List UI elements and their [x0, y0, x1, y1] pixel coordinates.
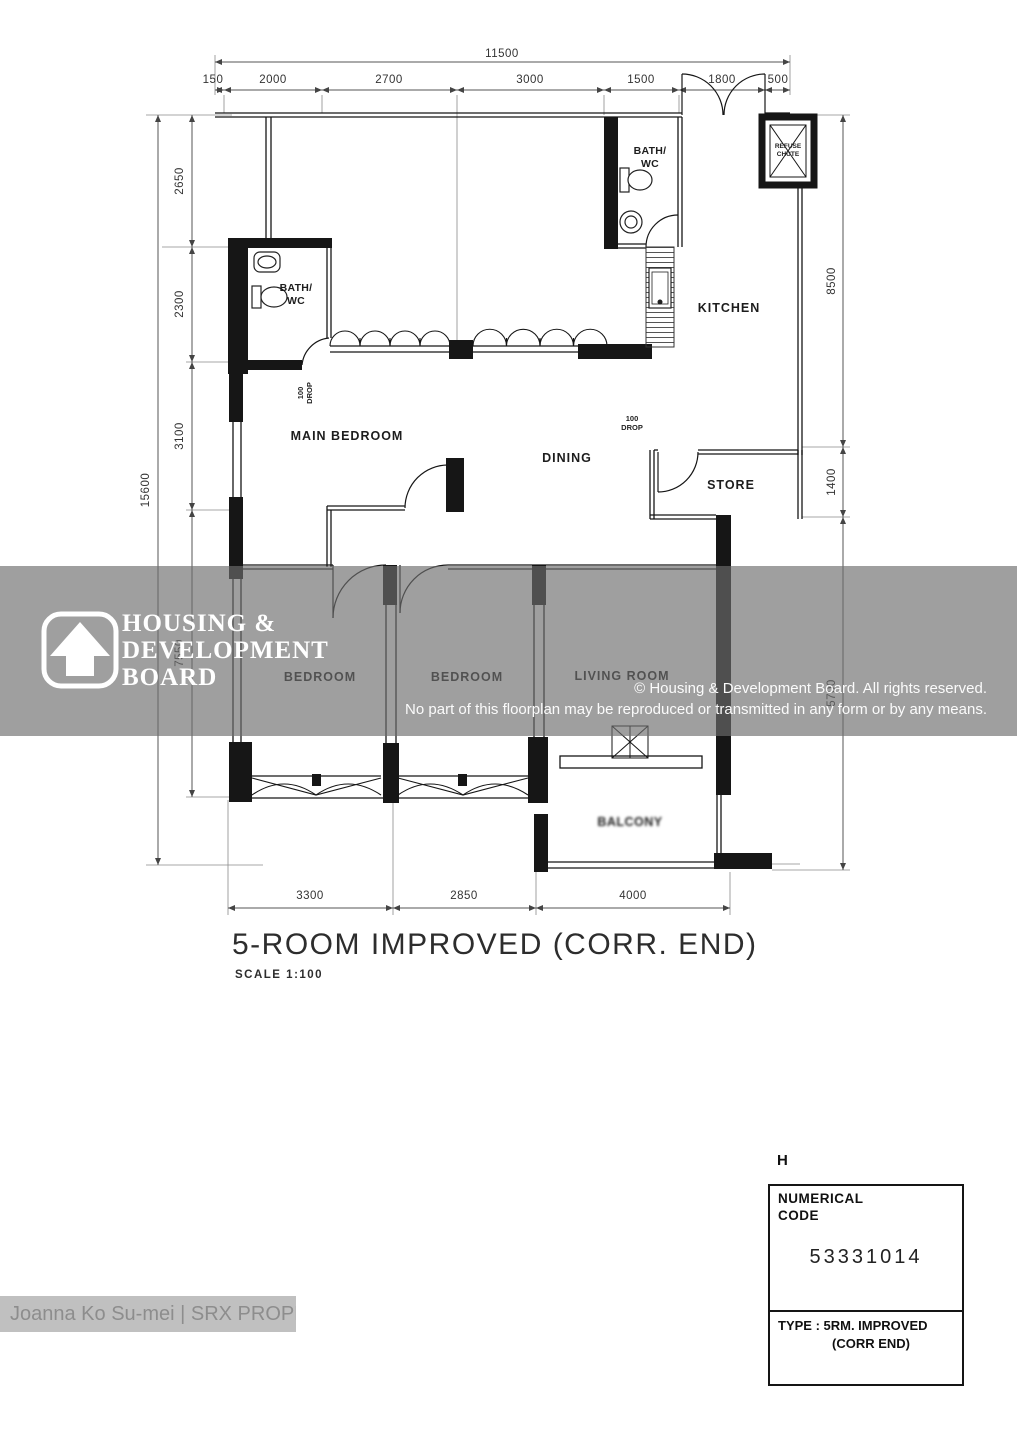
room-label-bath-top-1: BATH/	[634, 145, 667, 157]
dim-top-total: 11500	[485, 48, 519, 60]
info-box-divider	[769, 1310, 963, 1312]
dim-top-2: 2700	[375, 74, 403, 86]
watermark-band: HOUSING & DEVELOPMENT BOARD © Housing & …	[0, 566, 1017, 736]
bath-top-door-arc	[646, 215, 678, 247]
dim-top-5: 1800	[708, 74, 736, 86]
numerical-code-header-2: CODE	[778, 1207, 864, 1224]
room-label-bath-left-1: BATH/	[280, 282, 313, 294]
bath-top-fixtures	[620, 168, 652, 233]
room-label-kitchen: KITCHEN	[698, 301, 761, 315]
room-label-store: STORE	[707, 478, 755, 492]
room-label-balcony: BALCONY	[597, 815, 662, 829]
store-door-arc	[658, 452, 698, 492]
type-line-2: (CORR END)	[832, 1336, 910, 1351]
bath-left-door-arc	[302, 338, 329, 365]
floorplan-drawing: 11500 150 2000 2700 3000 1500 1800 500 1…	[0, 0, 1017, 1010]
hdb-logo-line-2: DEVELOPMENT	[122, 637, 329, 664]
dim-top-6: 500	[768, 74, 789, 86]
kitchen-counter	[646, 247, 674, 347]
main-bedroom-door-arc	[405, 465, 448, 508]
dim-left-total: 15600	[140, 473, 152, 507]
room-label-dining: DINING	[542, 451, 592, 465]
dim-left-0: 2650	[174, 167, 186, 195]
room-label-bath-left-2: WC	[287, 295, 305, 307]
type-line-1: TYPE : 5RM. IMPROVED	[778, 1318, 928, 1333]
numerical-code-value: 53331014	[770, 1246, 962, 1269]
bath-left-fixtures	[252, 252, 287, 308]
room-label-main-bedroom: MAIN BEDROOM	[291, 429, 404, 443]
numerical-code-box: NUMERICAL CODE 53331014 TYPE : 5RM. IMPR…	[768, 1184, 964, 1386]
drop-label-kitchen-1: 100	[626, 414, 639, 423]
copyright-text: © Housing & Development Board. All right…	[405, 678, 987, 720]
corner-letter: H	[777, 1152, 788, 1169]
copyright-line-1: © Housing & Development Board. All right…	[405, 678, 987, 699]
refuse-chute-icon: REFUSE CHUTE	[762, 117, 814, 185]
plan-title: 5-ROOM IMPROVED (CORR. END)	[232, 928, 758, 962]
up-arrow-icon	[50, 622, 110, 676]
hdb-logo	[40, 610, 120, 690]
dim-bottom-0: 3300	[296, 890, 324, 902]
dim-top-3: 3000	[516, 74, 544, 86]
copyright-line-2: No part of this floorplan may be reprodu…	[405, 699, 987, 720]
drop-label-kitchen-2: DROP	[621, 423, 643, 432]
refuse-chute-label-2: CHUTE	[777, 151, 800, 158]
room-label-bath-top-2: WC	[641, 158, 659, 170]
hdb-logo-line-1: HOUSING &	[122, 610, 329, 637]
dim-top-4: 1500	[627, 74, 655, 86]
dim-top-0: 150	[203, 74, 224, 86]
numerical-code-header-1: NUMERICAL	[778, 1190, 864, 1207]
floorplan-page: 11500 150 2000 2700 3000 1500 1800 500 1…	[0, 0, 1017, 1440]
dim-left-2: 3100	[174, 422, 186, 450]
dim-left-1: 2300	[174, 290, 186, 318]
dim-top-1: 2000	[259, 74, 287, 86]
agent-watermark: Joanna Ko Su-mei | SRX PROPERTY	[0, 1296, 296, 1332]
hdb-logo-line-3: BOARD	[122, 664, 329, 691]
dim-right-0: 8500	[826, 267, 838, 295]
toilet-icon	[252, 286, 261, 308]
drop-label-bath-2: DROP	[305, 382, 314, 404]
drop-label-bath-1: 100	[296, 387, 305, 400]
dim-right-1: 1400	[826, 468, 838, 496]
refuse-chute-label-1: REFUSE	[775, 143, 802, 150]
scale-label: SCALE 1:100	[235, 969, 323, 981]
dim-bottom-2: 4000	[619, 890, 647, 902]
hdb-logo-text: HOUSING & DEVELOPMENT BOARD	[122, 610, 329, 691]
walls-black	[228, 117, 772, 872]
dim-bottom-1: 2850	[450, 890, 478, 902]
numerical-code-header: NUMERICAL CODE	[778, 1190, 864, 1224]
